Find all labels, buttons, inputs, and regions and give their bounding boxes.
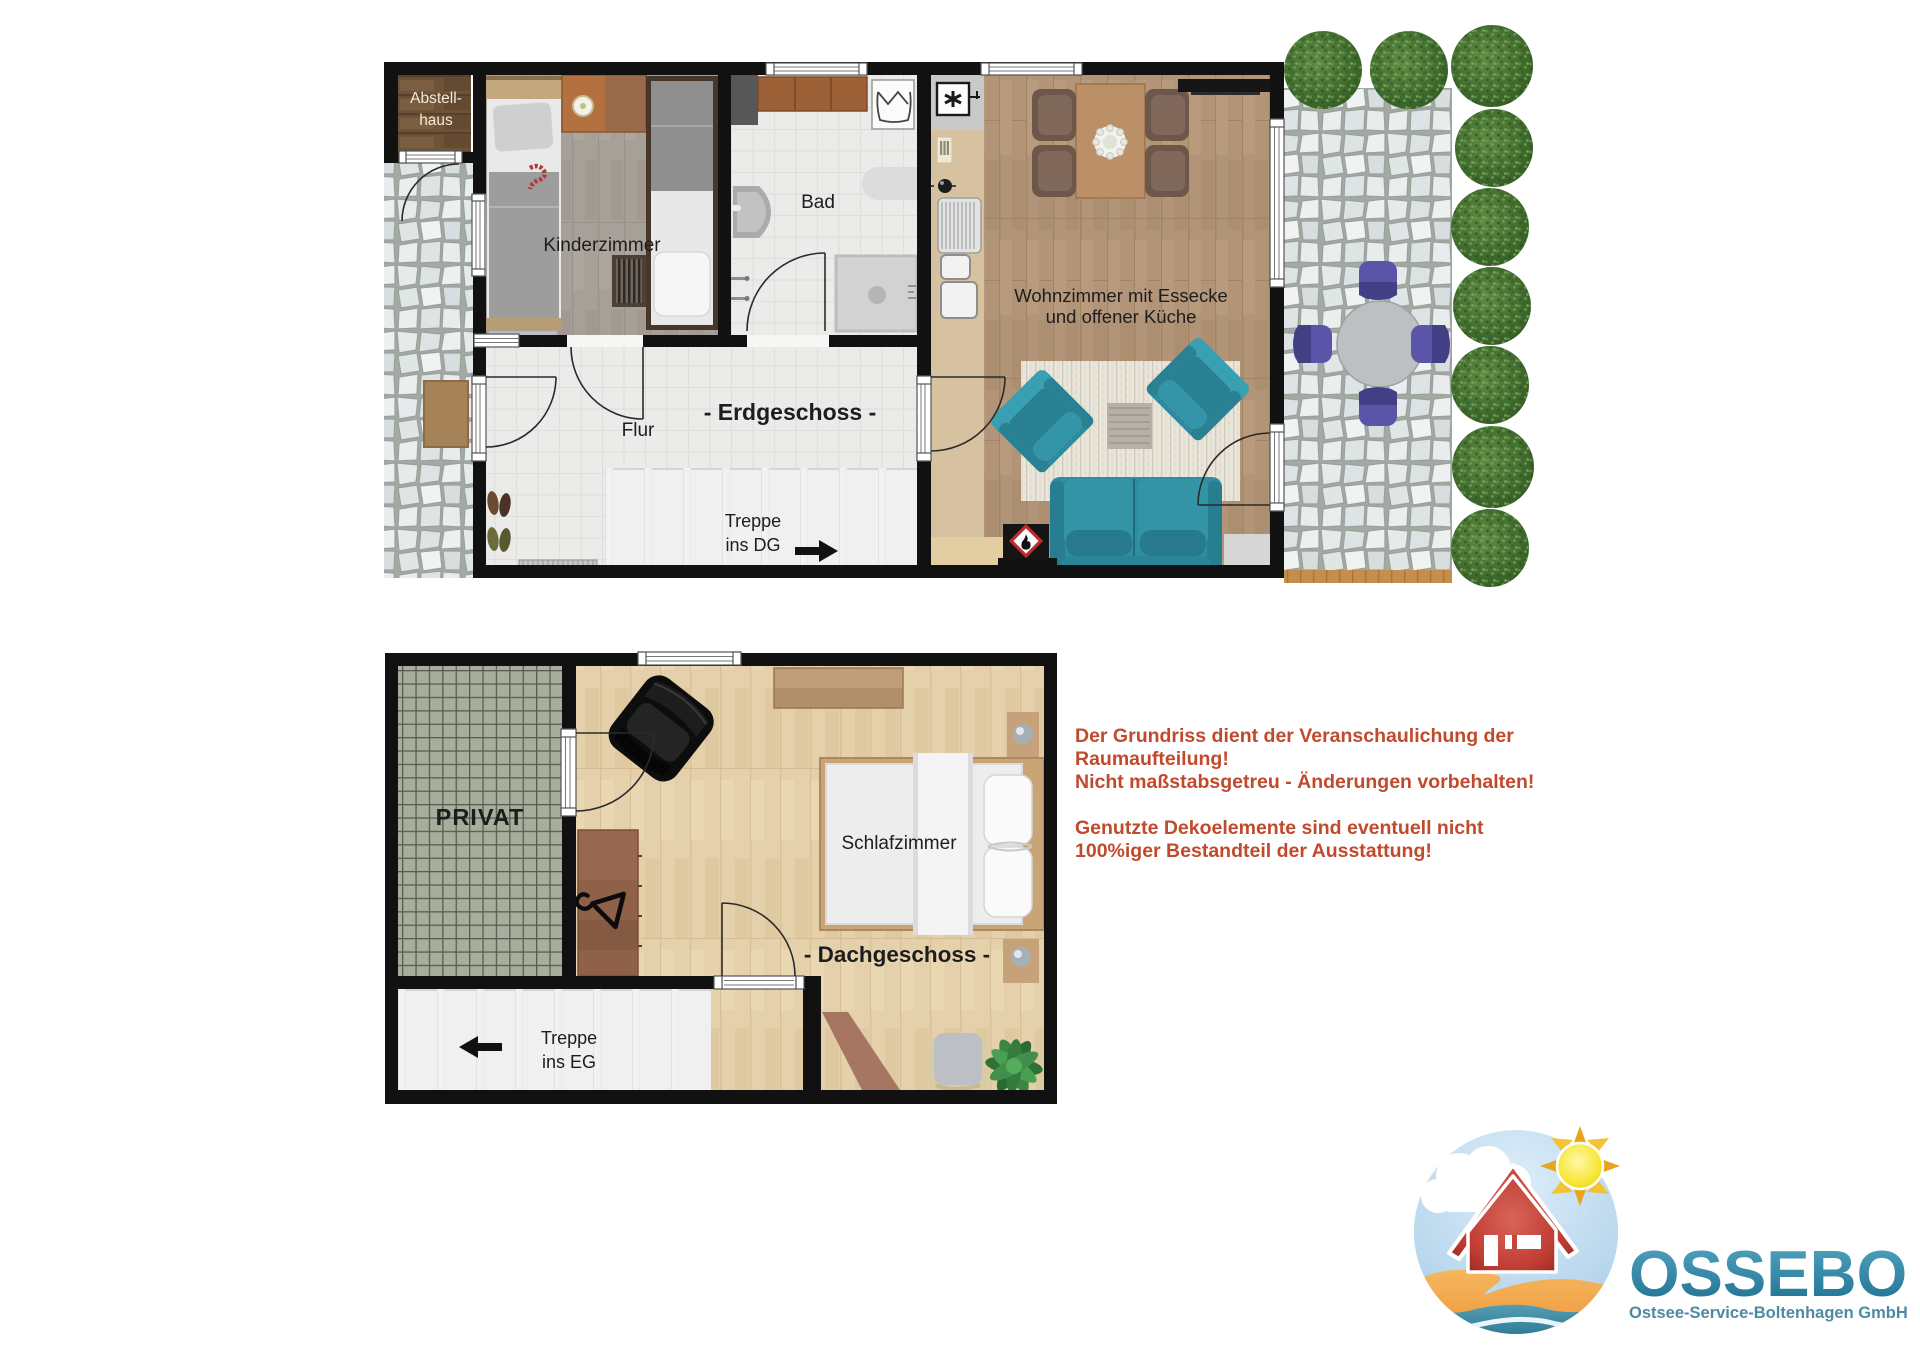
svg-text:Bad: Bad — [801, 192, 835, 213]
svg-text:Raumaufteilung!: Raumaufteilung! — [1075, 748, 1229, 770]
svg-text:Wohnzimmer mit Essecke: Wohnzimmer mit Essecke — [1014, 285, 1227, 306]
svg-text:Flur: Flur — [622, 420, 655, 441]
svg-text:ins DG: ins DG — [725, 535, 780, 555]
svg-text:Ostsee-Service-Boltenhagen Gmb: Ostsee-Service-Boltenhagen GmbH — [1629, 1304, 1908, 1322]
svg-text:- Erdgeschoss -: - Erdgeschoss - — [704, 399, 877, 425]
svg-text:Kinderzimmer: Kinderzimmer — [543, 235, 661, 256]
svg-text:Der Grundriss dient der Verans: Der Grundriss dient der Veranschaulichun… — [1075, 725, 1514, 747]
svg-text:Treppe: Treppe — [541, 1028, 597, 1048]
svg-text:100%iger Bestandteil der Ausst: 100%iger Bestandteil der Ausstattung! — [1075, 840, 1432, 862]
svg-text:Abstell-: Abstell- — [410, 90, 462, 107]
svg-text:Schlafzimmer: Schlafzimmer — [841, 833, 957, 854]
svg-text:ins EG: ins EG — [542, 1052, 596, 1072]
svg-text:- Dachgeschoss -: - Dachgeschoss - — [804, 942, 990, 967]
svg-text:Nicht maßstabsgetreu - Änderun: Nicht maßstabsgetreu - Änderungen vorbeh… — [1075, 770, 1534, 793]
svg-text:und offener Küche: und offener Küche — [1046, 306, 1197, 327]
svg-text:Treppe: Treppe — [725, 511, 781, 531]
svg-text:haus: haus — [419, 112, 453, 129]
svg-text:OSSEBO: OSSEBO — [1629, 1237, 1907, 1310]
svg-text:PRIVAT: PRIVAT — [436, 804, 525, 830]
svg-text:Genutzte Dekoelemente sind eve: Genutzte Dekoelemente sind eventuell nic… — [1075, 817, 1484, 839]
